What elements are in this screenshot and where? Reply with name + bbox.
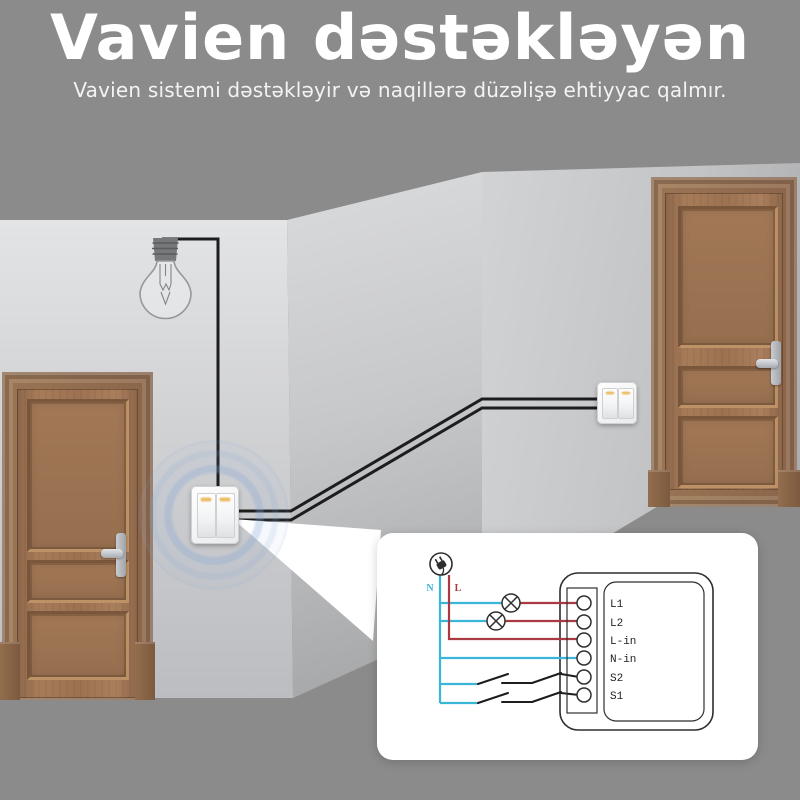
terminal-label-nin: N-in	[610, 654, 636, 666]
terminal-label-lin: L-in	[610, 636, 636, 648]
light-bulb-icon	[140, 238, 191, 319]
right-wall-switch	[597, 382, 637, 424]
rocker-indicator	[201, 498, 211, 501]
rocker-indicator	[220, 498, 230, 501]
switch-rocker	[216, 493, 235, 538]
lamp-icons	[487, 594, 520, 630]
switch-link-wire	[239, 408, 598, 520]
switch-link-wire	[239, 399, 598, 511]
terminal-label-s2: S2	[610, 673, 623, 685]
rocker-indicator	[606, 392, 614, 394]
switch-rocker	[602, 388, 618, 419]
switch-rocker	[618, 388, 634, 419]
power-plug-icon	[430, 553, 452, 575]
wiring-diagram-card: N L L1 L2 L-in N-in S2 S1	[377, 533, 758, 760]
terminal-label-l1: L1	[610, 599, 624, 611]
live-label: L	[455, 583, 462, 594]
terminal-label-l2: L2	[610, 618, 623, 630]
rocker-indicator	[622, 392, 630, 394]
switch-rocker	[197, 493, 216, 538]
neutral-label: N	[426, 583, 434, 594]
wiring-diagram: N L L1 L2 L-in N-in S2 S1	[377, 533, 758, 760]
bulb-cap	[153, 238, 178, 261]
left-wall-switch	[191, 486, 239, 544]
terminal-label-s1: S1	[610, 691, 624, 703]
